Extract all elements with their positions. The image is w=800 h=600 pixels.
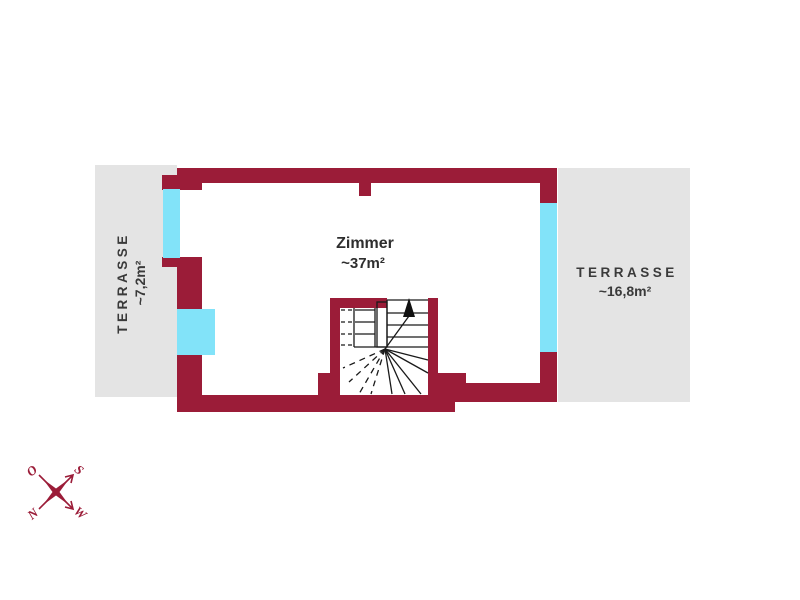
compass-label-n: N [23, 504, 41, 523]
terrace-left-name: TERRASSE [115, 232, 130, 334]
room-label: Zimmer ~37m² [336, 235, 394, 272]
compass-label-s: S [72, 462, 87, 478]
terrace-right-name: TERRASSE [576, 265, 678, 280]
wall-left-step [162, 257, 177, 267]
compass-label-w: W [71, 503, 91, 523]
stair-winder [385, 349, 428, 373]
stair-winder [385, 349, 428, 360]
room-area-value: ~37m² [341, 255, 385, 272]
stair-arrow-stem [385, 316, 409, 349]
staircase [341, 298, 428, 394]
window-left-upper [163, 189, 180, 258]
floor-plan: TERRASSE ~7,2m² TERRASSE ~16,8m² Zimmer … [0, 0, 800, 600]
terrace-left-area-value: ~7,2m² [132, 260, 148, 305]
walls [162, 168, 557, 412]
compass-label-o: O [23, 461, 40, 479]
compass-rose: O S N W [23, 461, 90, 523]
window-right [540, 203, 557, 352]
window-left-square [177, 309, 215, 355]
terrace-right-area-value: ~16,8m² [599, 283, 652, 299]
wall-left-lower [177, 355, 202, 412]
stair-up-arrow-icon [403, 298, 415, 317]
room-name: Zimmer [336, 235, 394, 252]
windows [163, 189, 557, 355]
wall-bottom-main [177, 395, 455, 412]
stair-wall-right-chunk [428, 373, 466, 385]
stair-wall-left-stub [318, 373, 332, 397]
stair-spine [377, 302, 387, 347]
wall-top [177, 168, 557, 183]
stair-winder-hidden [371, 349, 385, 394]
wall-top-left-ext [162, 175, 202, 190]
wall-top-stub [359, 183, 371, 196]
wall-left-mid [177, 257, 202, 309]
compass-star-icon [43, 479, 69, 505]
stair-wall-top [330, 298, 387, 308]
stair-winder-hidden [343, 349, 385, 368]
wall-right-upper [540, 183, 557, 204]
stair-winder-hidden [359, 349, 385, 394]
stair-winder-hidden [349, 349, 385, 382]
